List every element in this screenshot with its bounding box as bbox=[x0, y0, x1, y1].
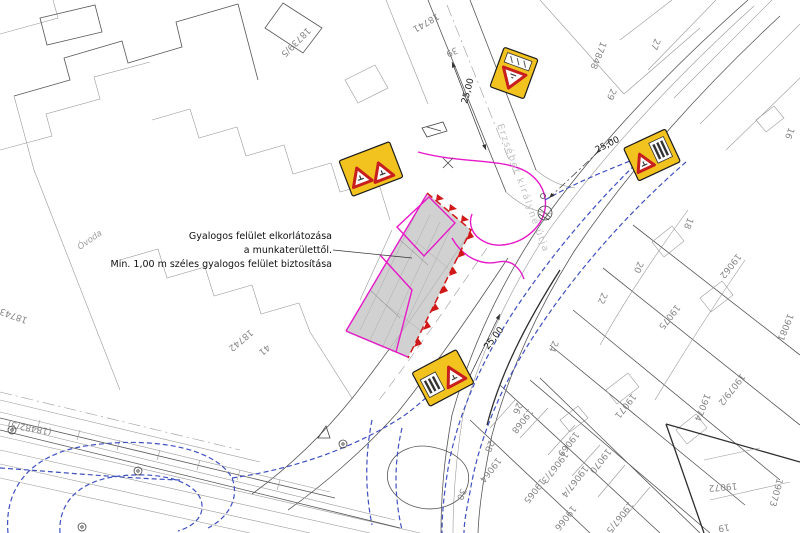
note-line-2: a munkaterülettől. bbox=[244, 245, 332, 256]
note-line-3: Min. 1,00 m széles gyalogos felület bizt… bbox=[111, 259, 333, 270]
parcel-label: 19 bbox=[717, 521, 730, 533]
site-plan-canvas: Gyalogos felület elkorlátozásaa munkater… bbox=[0, 0, 800, 533]
note-line-1: Gyalogos felület elkorlátozása bbox=[189, 231, 332, 242]
